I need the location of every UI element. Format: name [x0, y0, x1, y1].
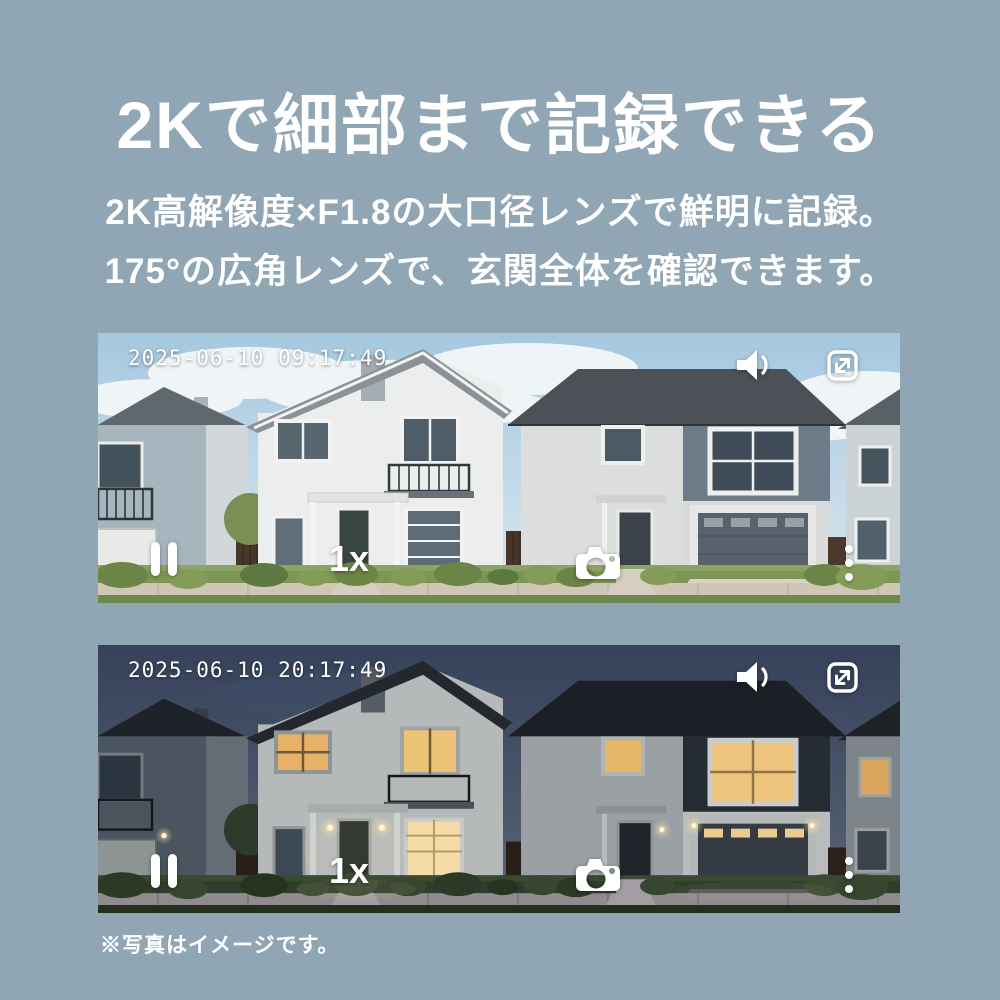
- zoom-level-button[interactable]: 1x: [329, 850, 369, 892]
- snapshot-camera-icon[interactable]: [575, 855, 621, 892]
- pause-button[interactable]: [151, 542, 177, 576]
- night-street-photo: [98, 645, 900, 913]
- subtitle-line1: 2K高解像度×F1.8の大口径レンズで鮮明に記録。: [0, 184, 1000, 235]
- pause-button[interactable]: [151, 854, 177, 888]
- volume-icon[interactable]: [735, 348, 777, 382]
- camera-view-night: 2025-06-10 20:17:49 1x: [98, 645, 900, 913]
- timestamp-night: 2025-06-10 20:17:49: [128, 658, 387, 682]
- more-menu-icon[interactable]: [845, 857, 853, 893]
- image-disclaimer: ※写真はイメージです。: [100, 929, 339, 959]
- timestamp-day: 2025-06-10 09:17:49: [128, 346, 387, 370]
- more-menu-icon[interactable]: [845, 545, 853, 581]
- zoom-level-button[interactable]: 1x: [329, 538, 369, 580]
- fullscreen-icon[interactable]: [827, 350, 858, 381]
- camera-view-day: 2025-06-10 09:17:49 1x: [98, 333, 900, 603]
- volume-icon[interactable]: [735, 660, 777, 694]
- snapshot-camera-icon[interactable]: [575, 543, 621, 580]
- subtitle-line2: 175°の広角レンズで、玄関全体を確認できます。: [0, 243, 1000, 294]
- day-street-photo: [98, 333, 900, 603]
- page-title: 2Kで細部まで記録できる: [0, 72, 1000, 168]
- fullscreen-icon[interactable]: [827, 662, 858, 693]
